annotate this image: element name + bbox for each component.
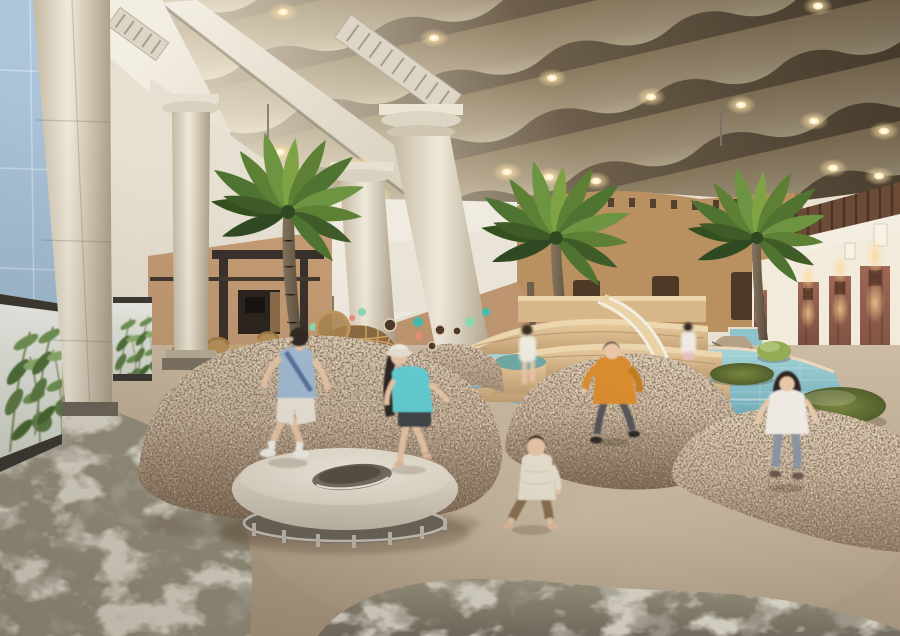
scene-canvas <box>0 0 900 636</box>
vignette-overlay <box>0 0 900 636</box>
playground-rendering <box>0 0 900 636</box>
